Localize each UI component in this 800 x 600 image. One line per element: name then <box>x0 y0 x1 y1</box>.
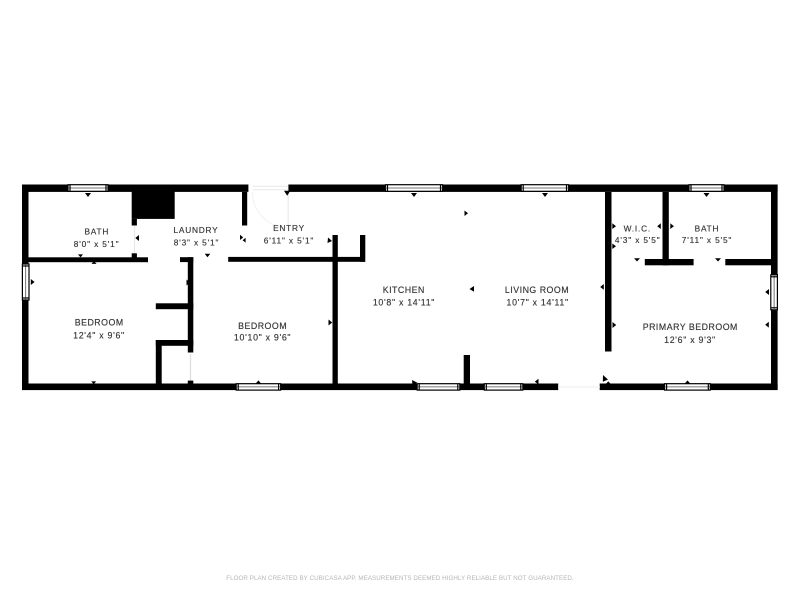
svg-text:10'7" x 14'11": 10'7" x 14'11" <box>507 297 569 307</box>
svg-text:8'3" x 5'1": 8'3" x 5'1" <box>174 237 220 247</box>
svg-text:BATH: BATH <box>695 224 720 234</box>
svg-text:PRIMARY BEDROOM: PRIMARY BEDROOM <box>643 322 738 332</box>
svg-text:BATH: BATH <box>84 227 109 237</box>
svg-text:LAUNDRY: LAUNDRY <box>174 225 219 235</box>
svg-text:12'6" x 9'3": 12'6" x 9'3" <box>664 335 716 345</box>
svg-text:8'0" x 5'1": 8'0" x 5'1" <box>74 239 120 249</box>
svg-text:6'11" x 5'1": 6'11" x 5'1" <box>264 235 314 245</box>
svg-text:W.I.C.: W.I.C. <box>624 224 651 234</box>
svg-text:FLOOR PLAN CREATED BY CUBICASA: FLOOR PLAN CREATED BY CUBICASA APP. MEAS… <box>226 575 574 582</box>
svg-text:10'8" x 14'11": 10'8" x 14'11" <box>373 297 435 307</box>
svg-text:LIVING ROOM: LIVING ROOM <box>505 285 569 295</box>
svg-text:7'11" x 5'5": 7'11" x 5'5" <box>682 235 732 245</box>
svg-text:BEDROOM: BEDROOM <box>75 317 124 327</box>
svg-text:KITCHEN: KITCHEN <box>383 285 425 295</box>
svg-text:BEDROOM: BEDROOM <box>238 321 287 331</box>
svg-text:4'3" x 5'5": 4'3" x 5'5" <box>615 235 661 245</box>
svg-text:12'4" x 9'6": 12'4" x 9'6" <box>73 331 125 341</box>
svg-text:10'10" x 9'6": 10'10" x 9'6" <box>234 333 291 343</box>
svg-text:ENTRY: ENTRY <box>273 223 305 233</box>
